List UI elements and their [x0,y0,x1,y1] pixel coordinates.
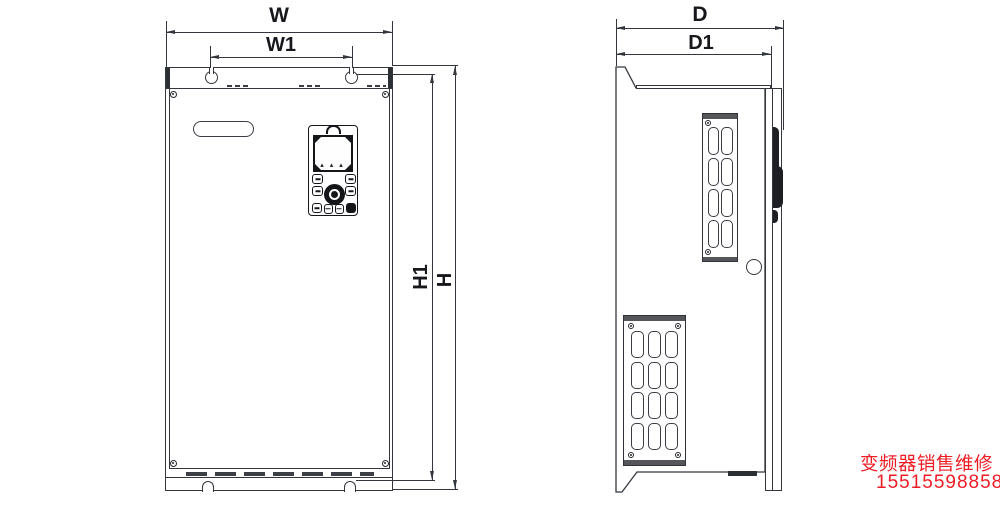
dim-extension-line [357,74,435,75]
top-plate-vent-dashes [227,85,249,87]
vent-slot [665,331,678,358]
dim-extension-line [392,489,458,490]
dim-line-W1 [210,57,352,58]
vent-slot [665,362,678,389]
dim-extension-line [393,65,458,66]
dim-arrow [210,55,219,59]
vent-slot [721,189,732,217]
screw-icon [170,460,177,467]
vent-slot [721,127,732,155]
screw-icon [382,91,389,98]
dim-arrow [430,74,434,83]
top-plate-vent-dashes [299,85,323,87]
bottom-vent-slots [186,472,374,477]
mounting-notch-left [202,481,214,493]
grille-slots [708,127,733,248]
vent-slot [648,331,661,358]
dim-arrow [166,30,175,34]
top-plate-edge-left [166,68,170,88]
back-grommet [773,166,783,208]
bottom-foot [728,471,757,476]
keypad: ▴ ▴ ▴ [308,125,358,216]
bottom-flange-line [165,477,393,478]
dim-extension-line [356,480,435,481]
vent-slot [708,220,719,248]
vent-slot [721,158,732,186]
keypad-handle-arc [326,125,341,134]
dim-label-H: H [434,267,456,293]
dimension-drawing: ▴ ▴ ▴ W [0,0,1000,506]
top-plate-edge-right [388,68,392,88]
mounting-notch-right [344,481,356,493]
top-plate-vent-dashes [367,85,386,87]
dim-arrow [616,26,625,30]
display-corner-mark [315,137,321,143]
vent-slot [721,220,732,248]
vent-slot [648,423,661,450]
dim-arrow [430,471,434,480]
dim-label-W: W [265,5,293,27]
grille-cap [624,316,685,321]
dim-label-W1: W1 [261,34,301,56]
dim-line-D [616,28,784,29]
keypad-button [335,204,345,214]
keypad-button [312,174,323,184]
grille-cap [624,460,685,465]
vent-slot [648,362,661,389]
screw-icon [382,460,389,467]
dim-arrow [616,52,625,56]
keypad-button [312,186,323,196]
screw-icon [628,452,634,458]
screw-icon [705,249,711,255]
vent-slot [708,189,719,217]
grille-cap [703,257,737,262]
vent-slot [631,362,644,389]
screw-icon [170,91,177,98]
back-grommet [773,127,779,171]
keypad-button [346,203,356,213]
screw-icon [705,120,711,126]
dim-label-D: D [686,4,714,26]
screw-icon [675,452,681,458]
dim-label-D1: D1 [681,32,721,54]
keypad-button [345,174,356,184]
vent-slot [708,127,719,155]
keypad-display: ▴ ▴ ▴ [313,135,353,172]
screw-icon [675,323,681,329]
side-top-plate-lip [636,85,771,89]
dim-arrow [343,55,352,59]
dim-extension-line [783,20,784,130]
display-corner-mark [345,137,351,143]
vent-slot [648,392,661,419]
dim-arrow [453,480,457,489]
grille-slots [631,331,678,450]
keypad-button [324,204,334,214]
keypad-knob [324,184,345,205]
dim-extension-line [392,21,393,66]
grille-cap [703,114,737,119]
dim-extension-line [166,21,167,67]
vent-grille-lower [623,315,686,466]
vent-slot [665,423,678,450]
dim-arrow [453,66,457,75]
back-grommet [773,210,778,223]
dim-line-W [166,32,392,33]
side-round-hole [746,259,762,275]
vent-slot [665,392,678,419]
dim-arrow [775,26,784,30]
vent-slot [631,392,644,419]
vent-slot [631,331,644,358]
dim-arrow [383,30,392,34]
watermark-phone: 15515598858 [876,472,1000,494]
vent-slot [631,423,644,450]
nameplate [193,121,254,137]
keypad-button [345,186,356,196]
dim-label-H1: H1 [410,257,432,297]
keypad-button [312,203,322,213]
dim-line-H1 [432,74,433,480]
vent-grille-upper [702,113,738,262]
screw-icon [628,323,634,329]
display-indicator-arrows: ▴ ▴ ▴ [315,162,351,170]
vent-slot [708,158,719,186]
dim-arrow [762,52,771,56]
